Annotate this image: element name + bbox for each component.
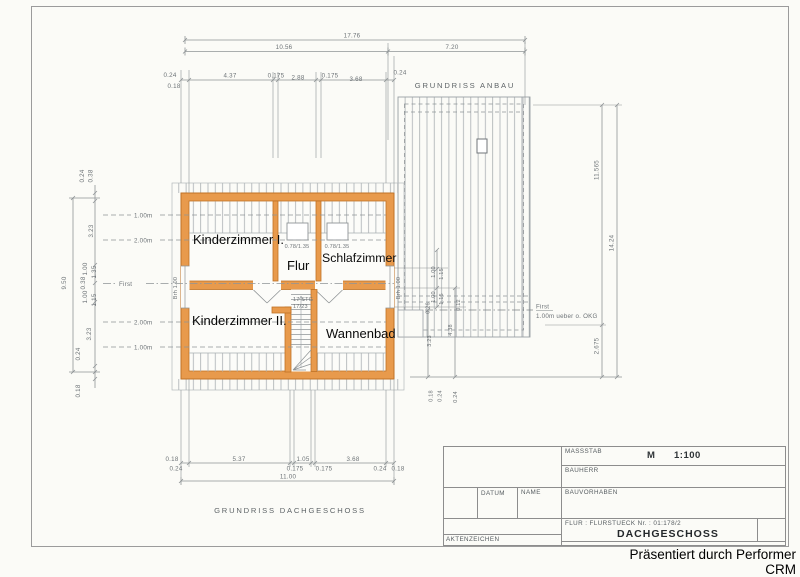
dim-top-sub: 0.18 xyxy=(167,83,180,90)
dim-bot-c0: 0.18 xyxy=(165,456,178,463)
dim-total-width: 17.76 xyxy=(344,33,361,40)
dim-top-c0: 0.24 xyxy=(163,72,176,79)
titleblock-bauvorhaben-cell: BAUVORHABEN xyxy=(561,487,786,519)
dim-left-c4: 1.35 xyxy=(91,265,98,278)
dim-left-c2: 3.23 xyxy=(88,224,95,237)
dim-bot-c7: 0.24 xyxy=(373,466,386,473)
annex-opening xyxy=(398,310,423,337)
dim-top-c1: 4.37 xyxy=(223,73,236,80)
dim-right-c4: 0.26 xyxy=(426,302,432,314)
room-label-flur: Flur xyxy=(287,258,310,273)
flur-flurstueck-label: FLUR : FLURSTUECK Nr. : 01:178/2 xyxy=(565,520,681,527)
roof-window-2 xyxy=(327,223,348,240)
dim-left-c7: 1.15 xyxy=(91,293,98,306)
dim-left-c6: 1.00 xyxy=(82,290,89,303)
dim-bot-c2: 5.37 xyxy=(232,456,245,463)
window-east xyxy=(386,266,395,308)
dim-right-c3: 1.15 xyxy=(439,293,445,305)
room-label-kinderzimmer-2: Kinderzimmer II. xyxy=(192,313,287,328)
dim-right-c6: 4.38 xyxy=(448,324,454,336)
dim-bot-c8: 0.18 xyxy=(391,466,404,473)
dim-right-c5: 0.12 xyxy=(456,299,462,311)
dim-house-width: 10.56 xyxy=(276,44,293,51)
dim-right-c1: 1.15 xyxy=(439,268,445,280)
bauvorhaben-label: BAUVORHABEN xyxy=(565,489,618,496)
room-label-schlafzimmer: Schlafzimmer xyxy=(322,251,396,265)
dim-left-c9: 0.24 xyxy=(75,347,82,360)
dim-left-c8: 3.23 xyxy=(86,327,93,340)
ridge-note-line1: First xyxy=(536,304,549,311)
dim-right-c9: 0.24 xyxy=(438,390,444,402)
partition-flur-schlaf xyxy=(316,201,321,281)
titleblock-bauherr-cell: BAUHERR xyxy=(561,465,786,488)
plan-title: GRUNDRISS DACHGESCHOSS xyxy=(214,506,366,515)
dim-right-c7: 3.23 xyxy=(427,335,433,347)
dim-top-c4: 0.175 xyxy=(322,73,339,80)
dim-bot-total: 11.00 xyxy=(280,474,297,481)
dim-left-total: 9.50 xyxy=(61,276,68,289)
massstab-label: MASSSTAB xyxy=(565,448,602,455)
roof-window-1 xyxy=(287,223,308,240)
dim-annex-total: 14.24 xyxy=(609,234,616,251)
datum-label: DATUM xyxy=(481,490,505,497)
ridge-note-line2: 1.00m ueber o. OKG xyxy=(536,313,598,320)
dim-top-c5: 3.68 xyxy=(349,76,362,83)
dim-bot-c3: 0.175 xyxy=(287,466,304,473)
dim-left-c0: 0.24 xyxy=(79,169,86,182)
dim-annex-lower: 2.675 xyxy=(594,337,601,354)
name-label: NAME xyxy=(521,489,541,496)
house-plan: 0.78/1.35 0.78/1.35 Brh 1.00 Brh 1.00 17… xyxy=(172,183,404,390)
dim-annex-width: 7.20 xyxy=(445,44,458,51)
titleblock-bottom-strip xyxy=(561,541,786,546)
height-label-3: 2.00m xyxy=(134,320,152,327)
watermark: Präsentiert durch Performer CRM xyxy=(600,547,796,577)
annex-plan: GRUNDRISS ANBAU First 1.00m ueber o. OKG xyxy=(398,81,598,337)
door-opening-2 xyxy=(315,280,343,291)
dim-left-c5: 0.38 xyxy=(80,276,87,289)
titleblock-empty-cell xyxy=(443,446,562,488)
dim-top-c2: 0.175 xyxy=(268,73,285,80)
parapet-height-left: Brh 1.00 xyxy=(173,277,179,299)
dim-left-c3: 1.00 xyxy=(82,262,89,275)
dim-bot-c6: 3.68 xyxy=(346,456,359,463)
height-label-2: 2.00m xyxy=(134,238,152,245)
dim-annex-inner: 11.565 xyxy=(594,160,601,180)
dim-top-c3: 2.88 xyxy=(291,75,304,82)
window-west xyxy=(181,266,190,308)
dim-right-c8: 0.18 xyxy=(429,390,435,402)
dim-left-c10: 0.18 xyxy=(75,384,82,397)
scale-prefix: M xyxy=(647,450,655,461)
scanned-floor-plan-page: { "watermark": "Präsentiert durch Perfor… xyxy=(0,0,800,565)
dim-right-c0: 1.00 xyxy=(431,266,437,278)
dim-right-c10: 0.24 xyxy=(453,391,459,403)
roof-window-1-size: 0.78/1.35 xyxy=(285,244,310,250)
titleblock-empty-row xyxy=(443,518,562,535)
knee-wall xyxy=(189,281,386,290)
eave-bottom xyxy=(172,379,404,390)
height-label-1: 1.00m xyxy=(134,213,152,220)
titleblock-sheet-cell: FLUR : FLURSTUECK Nr. : 01:178/2 DACHGES… xyxy=(561,518,758,542)
roof-window-2-size: 0.78/1.35 xyxy=(325,244,350,250)
room-label-kinderzimmer-1: Kinderzimmer I. xyxy=(193,232,284,247)
dim-bot-c4: 1.05 xyxy=(296,456,309,463)
titleblock-empty-small-cell xyxy=(443,487,478,519)
titleblock-corner-cell xyxy=(757,518,786,542)
stair-count: 17 STG xyxy=(293,297,313,303)
annex-chimney xyxy=(477,139,487,153)
titleblock-aktenzeichen-cell: AKTENZEICHEN xyxy=(443,534,562,546)
scale-value: 1:100 xyxy=(674,450,701,461)
height-label-4: 1.00m xyxy=(134,345,152,352)
stair-ratio: 17/23 xyxy=(293,304,308,310)
dim-right-c2: 1.00 xyxy=(431,291,437,303)
aktenzeichen-label: AKTENZEICHEN xyxy=(446,536,499,543)
titleblock-name-cell: NAME xyxy=(517,487,562,519)
door-opening-1 xyxy=(253,280,281,291)
sheet-name: DACHGESCHOSS xyxy=(617,528,719,540)
dim-bot-c5: 0.175 xyxy=(316,466,333,473)
room-label-wannenbad: Wannenbad xyxy=(326,326,396,341)
eave-top xyxy=(172,183,404,193)
titleblock-datum-cell: DATUM xyxy=(477,487,518,519)
bauherr-label: BAUHERR xyxy=(565,467,599,474)
titleblock-massstab-cell: MASSSTAB M 1:100 xyxy=(561,446,786,466)
dim-bot-c1: 0.24 xyxy=(169,466,182,473)
dim-left-c1: 0.38 xyxy=(88,169,95,182)
annex-title: GRUNDRISS ANBAU xyxy=(415,81,515,90)
ridge-label-left: First xyxy=(119,281,132,288)
dim-top-c6: 0.24 xyxy=(393,70,406,77)
